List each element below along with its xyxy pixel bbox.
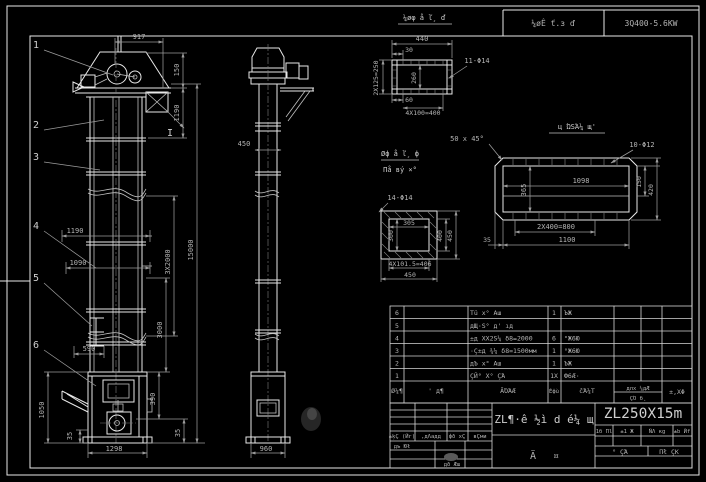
- titleblock-sign-label-1: дъ Юł: [394, 444, 411, 450]
- detail-casing-title: ц ΏЅΆ¼ щ': [558, 123, 596, 131]
- balloon-5: 5: [33, 273, 39, 284]
- dim-side-boot-width: 960: [260, 445, 273, 453]
- dim-casing-inner-w: 1098: [573, 177, 590, 185]
- bom-header-name: ÃΌΆÆ: [500, 386, 516, 395]
- bom-header-row: Ø¼¶ ' д¶ ÃΌΆÆ Éфù čΆ¼T длх ¼дÆ ÇΌ б¸ ±,X…: [391, 386, 685, 402]
- dim-flange-holes: 11-Φ14: [464, 57, 489, 65]
- bom-rows: 6 Тü х° Аш 1 ЪЖ 5 дЩ·Ѕ° д' ıд 4 ±д ΧХ2Ѕ¼…: [395, 309, 580, 380]
- bom-header-weight-top: длх ¼дÆ: [626, 386, 650, 392]
- bom-row-material: °Ж6Ю: [564, 347, 580, 355]
- balloon-4: 4: [33, 221, 39, 232]
- cad-canvas: ¼øÊ ť.з ď 3Q400-5.6KW I: [0, 0, 706, 482]
- mini-grid-header-4: ±b Йf: [674, 428, 691, 435]
- bom-row-material: ЪЖ: [564, 360, 572, 368]
- dim-right-low: 35: [174, 429, 182, 437]
- titleblock-rev-label-4: вÇми: [473, 434, 486, 440]
- titleblock-rev-label-3: фð хÇ: [449, 434, 466, 440]
- dim-casing-width: 1100: [559, 236, 576, 244]
- bom-row-no: 2: [395, 360, 399, 368]
- bom-header-qty: Éфù: [549, 387, 559, 395]
- side-view: 450 960: [238, 44, 314, 458]
- dim-square-pitch: 4Χ101.5=406: [388, 260, 431, 268]
- balloon-3: 3: [33, 152, 39, 163]
- title-block: ±ķÇ (Йг) ,дΛадд фð хÇ вÇми дъ Юł дð Æш Z…: [389, 403, 692, 468]
- mini-grid-header-2: ±1 Ж: [620, 429, 634, 435]
- dim-square-right-outer: 450: [446, 230, 454, 242]
- detail-square-title-2: Пå вý ×°: [383, 165, 417, 174]
- dim-square-right-inner: 400: [436, 230, 444, 242]
- dim-boot-width: 1298: [106, 445, 123, 453]
- bom-row-no: 1: [395, 372, 399, 380]
- bom-header-weight-bottom: ÇΌ б¸: [630, 395, 647, 402]
- drawing-title: ZL¶·ê ½ì d é¼ щ: [494, 413, 594, 426]
- bom-row-name: дЪ х° Аш: [470, 360, 501, 368]
- balloon-1: 1: [33, 40, 39, 51]
- bom-row-qty: 1: [552, 347, 556, 355]
- dim-flange-edge: 60: [405, 96, 413, 104]
- dim-casing-right-outer: 420: [647, 184, 655, 196]
- bom-header-note: ±,XΦ: [669, 388, 685, 396]
- bom-row-qty: 1: [552, 309, 556, 317]
- sheet-border: [0, 6, 699, 475]
- strip-motor-spec: 3Q400-5.6KW: [625, 19, 678, 28]
- bom-row-qty: 1: [552, 360, 556, 368]
- titleblock-rev-label-2: ,дΛадд: [421, 434, 442, 440]
- bom-row-qty: 1X: [550, 372, 558, 380]
- drawing-type-char-1: Ä: [530, 449, 536, 462]
- detail-flange-title: ¼øφ å ľ¸ ď: [403, 13, 446, 22]
- mini-grid-header-3: ÑΛ кg: [649, 428, 666, 435]
- section-mark-label: I: [167, 128, 173, 139]
- dim-flange-height: 260: [410, 72, 418, 84]
- bom-header-no: Ø¼¶: [391, 387, 403, 395]
- dim-boot-height: 1050: [38, 402, 46, 419]
- bom-row-material: ЪЖ: [564, 309, 572, 317]
- dim-platform-w2: 1090: [70, 259, 87, 267]
- detail-flange: ¼øφ å ľ¸ ď 440 30 2Χ125=250 260 60 4Χ100…: [372, 13, 490, 117]
- dim-square-width: 450: [404, 271, 416, 279]
- bom-row-material: °Ж6Ю: [564, 335, 580, 343]
- balloon-2: 2: [33, 120, 39, 131]
- dim-flange-width: 440: [416, 35, 429, 43]
- dim-side-head-width: 450: [238, 140, 251, 148]
- front-view: I 917 150 1190 11: [33, 33, 205, 458]
- titleblock-rev-label-1: ±ķÇ (Йг): [389, 433, 416, 440]
- bom-header-code: ' д¶: [428, 387, 444, 395]
- dim-top-width: 917: [133, 33, 146, 41]
- bom-row-qty: 6: [552, 335, 556, 343]
- dim-casing-edge: 35: [483, 236, 491, 244]
- bom-row-name: дЩ·Ѕ° д' ıд: [470, 322, 513, 330]
- dim-casing-inner-h: 365: [520, 184, 528, 197]
- bom-row-no: 6: [395, 309, 399, 317]
- dim-flange-left: 2Χ125=250: [372, 60, 380, 95]
- mini-grid-cell-1: ° ÇΆ: [612, 448, 628, 456]
- top-title-strip: ¼øÊ ť.з ď 3Q400-5.6KW: [503, 10, 699, 36]
- mini-grid-header-1: 1б Пl: [596, 428, 613, 435]
- dim-flange-offset: 30: [405, 46, 413, 54]
- dim-boot-gap: 35: [66, 432, 74, 440]
- dim-platform-w1: 1190: [67, 227, 84, 235]
- bom-row-name: ±д ΧХ2Ѕ¼ δ8=2000: [470, 335, 533, 343]
- dim-lower-height: 3000: [156, 322, 164, 339]
- bom-row-material: Ф6Æ·: [564, 372, 580, 380]
- dim-casing-right-inner: 150: [635, 176, 643, 188]
- dim-casing-pitch: 2Χ400=800: [537, 223, 575, 231]
- dim-bucket-pitch: 590: [83, 345, 96, 353]
- bom-row-no: 4: [395, 335, 399, 343]
- detail-casing: ц ΏЅΆ¼ щ' 50 x 45° 10-Φ12 1098 365 150 4…: [450, 123, 661, 249]
- dim-right-mid: 390: [149, 393, 157, 406]
- bom-row-no: 5: [395, 322, 399, 330]
- bom-row-name: ·Ç±д ¾¼ δ8=1500мм: [470, 347, 537, 355]
- signature-mark: [444, 453, 458, 461]
- dim-upper-height: 1190: [173, 105, 181, 122]
- detail-square: Øф å ľ¸ ф Пå вý ×° 14-Φ14 305 300 400 45…: [379, 149, 460, 282]
- strip-note-label: ¼øÊ ť.з ď: [531, 17, 576, 28]
- bom-row-name: ÇЙ° X° ÇΆ: [470, 371, 505, 380]
- detail-square-title-1: Øф å ľ¸ ф: [381, 149, 419, 158]
- bom-row-name: Тü х° Аш: [470, 309, 501, 317]
- dim-head-height: 150: [173, 64, 181, 77]
- bom-header-material: čΆ¼T: [579, 387, 595, 395]
- bom-table: Ø¼¶ ' д¶ ÃΌΆÆ Éфù čΆ¼T длх ¼дÆ ÇΌ б¸ ±,X…: [390, 306, 692, 403]
- dim-square-inner-h: 300: [387, 230, 395, 242]
- dim-casing-chamfer: 50 x 45°: [450, 135, 484, 143]
- dim-square-inner-w: 305: [403, 219, 415, 227]
- dim-casing-holes: 10-Φ12: [629, 141, 654, 149]
- drawing-type-char-2: ¤: [553, 451, 559, 462]
- dim-mid-sections: 3Χ2000: [164, 249, 172, 274]
- dim-overall-height: 15000: [187, 239, 195, 260]
- bom-row-no: 3: [395, 347, 399, 355]
- dim-square-holes: 14-Φ14: [387, 194, 412, 202]
- mini-grid-cell-2: Пł ÇΚ: [659, 448, 679, 456]
- cad-drawing-sheet: ¼øÊ ť.з ď 3Q400-5.6KW I: [0, 0, 706, 482]
- titleblock-sign-label-2: дð Æш: [444, 462, 461, 468]
- screen-smudge: [301, 407, 321, 431]
- drawing-model: ZL250X15m: [604, 406, 683, 422]
- dim-flange-pitch: 4Χ100=400: [405, 109, 440, 117]
- front-boot: [62, 372, 152, 443]
- balloon-6: 6: [33, 340, 39, 351]
